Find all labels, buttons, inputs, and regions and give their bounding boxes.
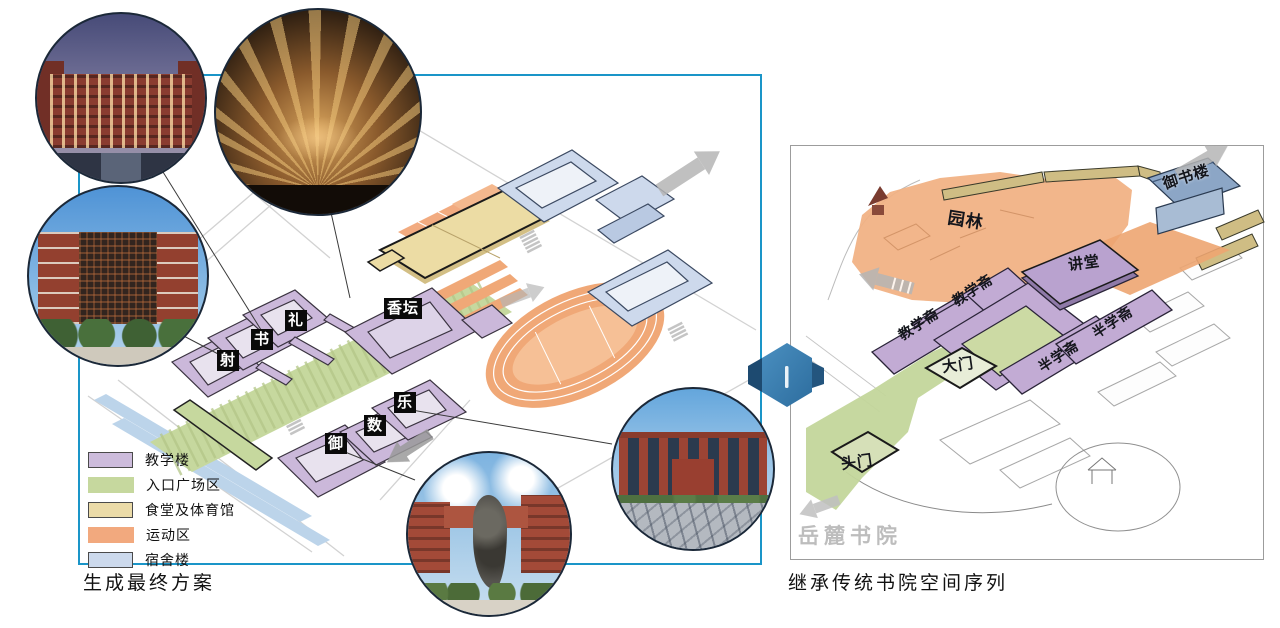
label-garden: 园林 [946,203,985,233]
legend-label: 运动区 [146,525,191,545]
label-damen: 大门 [941,352,976,377]
label-li: 礼 [285,310,307,331]
photo-brick-facade [27,185,209,367]
legend-row: 运动区 [88,522,235,547]
legend-row: 入口广场区 [88,472,235,497]
legend-swatch-plaza [88,477,134,493]
photo-dusk-building [35,12,207,184]
label-shu-num: 数 [364,415,386,436]
legend-row: 教学楼 [88,447,235,472]
legend-label: 教学楼 [145,450,190,470]
photo-vaulted-hall-interior [214,8,422,216]
legend-swatch-dorm [88,552,133,568]
label-jiangtang: 讲堂 [1067,250,1102,275]
presentation-canvas: { "left_panel": { "caption": "生成最终方案", "… [0,0,1280,628]
legend: 教学楼 入口广场区 食堂及体育馆 运动区 宿舍楼 [88,447,235,572]
label-toumen: 头门 [840,449,875,474]
right-caption: 继承传统书院空间序列 [788,568,1008,595]
right-plan-frame [790,145,1264,560]
connector-bar-icon [785,366,789,388]
watermark-yuelu-academy: 岳麓书院 [798,520,902,550]
label-xiangtan: 香坛 [384,298,422,319]
photo-courtyard-building [611,387,775,551]
legend-label: 食堂及体育馆 [145,500,235,520]
label-le: 乐 [394,392,416,413]
legend-swatch-teaching [88,452,133,468]
legend-label: 入口广场区 [146,475,221,495]
legend-swatch-canteen [88,502,133,518]
legend-swatch-sports [88,527,134,543]
label-shu: 书 [251,329,273,350]
left-caption: 生成最终方案 [83,568,215,595]
legend-label: 宿舍楼 [145,550,190,570]
photo-rock-courtyard [406,451,572,617]
label-yu: 御 [325,433,347,454]
label-she: 射 [217,350,239,371]
legend-row: 食堂及体育馆 [88,497,235,522]
